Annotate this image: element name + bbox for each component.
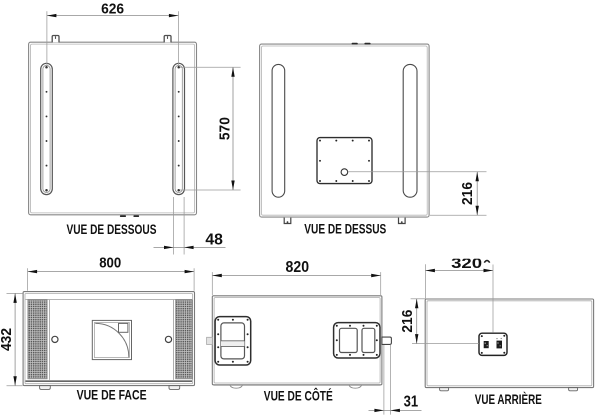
svg-text:VUE ARRIÈRE: VUE ARRIÈRE: [475, 392, 542, 407]
svg-text:216: 216: [459, 182, 476, 205]
svg-text:820: 820: [286, 259, 310, 276]
svg-text:VUE DE FACE: VUE DE FACE: [77, 388, 147, 403]
svg-text:432: 432: [0, 328, 15, 351]
svg-text:800: 800: [99, 254, 121, 271]
svg-text:570: 570: [216, 117, 233, 140]
svg-text:VUE DE DESSUS: VUE DE DESSUS: [304, 222, 386, 237]
svg-text:216: 216: [399, 310, 416, 333]
svg-text:31: 31: [404, 393, 419, 410]
svg-text:626: 626: [101, 0, 124, 17]
svg-text:VUE DE DESSOUS: VUE DE DESSOUS: [67, 222, 157, 237]
svg-text:VUE DE CÔTÉ: VUE DE CÔTÉ: [264, 388, 333, 403]
svg-text:48: 48: [205, 231, 223, 248]
